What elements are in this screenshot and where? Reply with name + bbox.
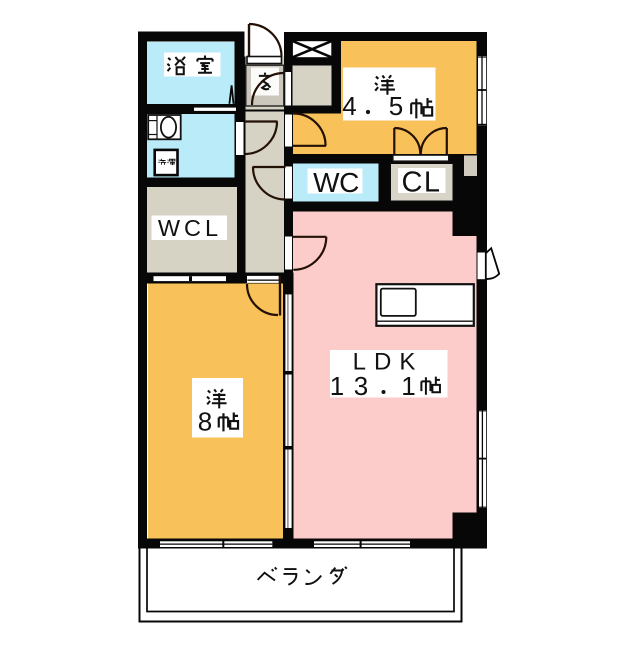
svg-text:3: 3 <box>354 371 368 401</box>
svg-text:8: 8 <box>198 407 212 437</box>
svg-text:5: 5 <box>389 91 403 121</box>
svg-text:WCL: WCL <box>158 215 222 241</box>
svg-text:4: 4 <box>342 91 356 121</box>
svg-text:1: 1 <box>330 371 344 401</box>
svg-text:1: 1 <box>401 371 415 401</box>
svg-text:CL: CL <box>401 167 441 199</box>
svg-text:WC: WC <box>313 167 359 198</box>
